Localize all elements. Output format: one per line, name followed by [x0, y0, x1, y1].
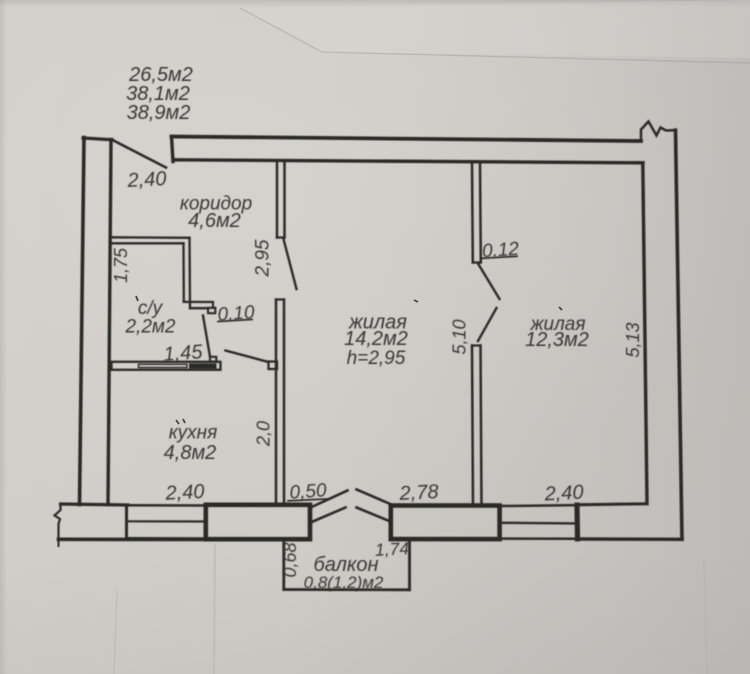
svg-text:0.10: 0.10 [217, 302, 256, 326]
svg-text:12,3м2: 12,3м2 [525, 329, 589, 351]
svg-text:2,40: 2,40 [126, 168, 167, 192]
svg-text:1,45: 1,45 [163, 341, 204, 366]
svg-text:2,2м2: 2,2м2 [124, 317, 175, 338]
svg-text:h=2,95: h=2,95 [347, 348, 406, 369]
svg-text:4,8м2: 4,8м2 [164, 442, 217, 464]
svg-text:2,95: 2,95 [253, 239, 274, 277]
svg-text:5,10: 5,10 [450, 319, 470, 354]
svg-text:14,2м2: 14,2м2 [344, 328, 408, 350]
svg-text:2,78: 2,78 [398, 481, 439, 505]
svg-text:2,0: 2,0 [254, 421, 274, 447]
svg-text:1,75: 1,75 [111, 247, 131, 283]
svg-text:кухня: кухня [169, 423, 218, 444]
svg-text:5,13: 5,13 [623, 322, 643, 357]
svg-text:0,50: 0,50 [289, 480, 328, 504]
svg-text:0,68: 0,68 [280, 542, 300, 577]
svg-text:38,9м2: 38,9м2 [127, 102, 191, 124]
svg-text:4,6м2: 4,6м2 [188, 210, 241, 232]
svg-text:0,8(1,2)м2: 0,8(1,2)м2 [304, 573, 384, 592]
svg-text:0.12: 0.12 [481, 239, 520, 263]
svg-text:1,74: 1,74 [374, 538, 409, 560]
svg-text:2,40: 2,40 [164, 481, 205, 505]
svg-text:2,40: 2,40 [543, 481, 584, 505]
